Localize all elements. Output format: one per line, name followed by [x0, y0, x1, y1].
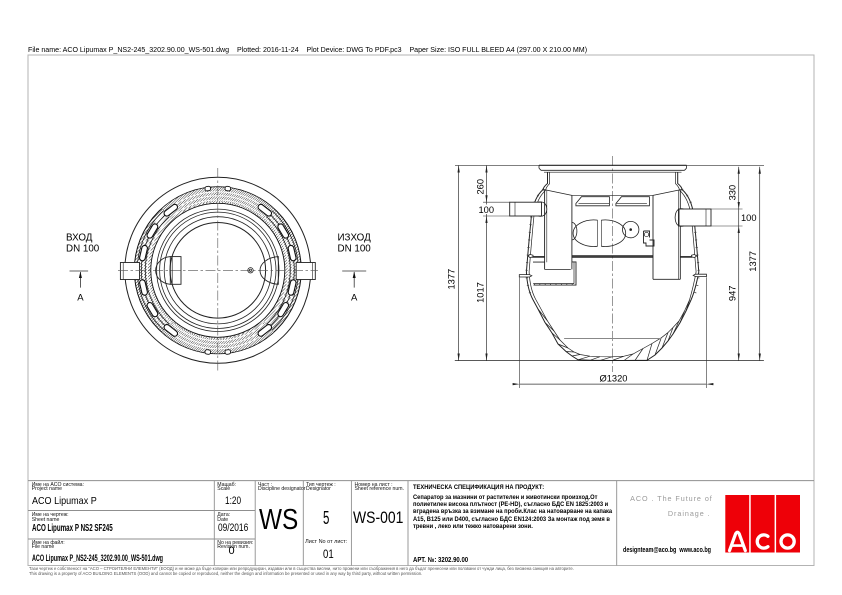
svg-text:ВХОД: ВХОД: [66, 232, 93, 243]
svg-text:1377: 1377: [446, 269, 456, 290]
svg-text:1377: 1377: [748, 251, 758, 272]
svg-text:330: 330: [728, 185, 738, 201]
svg-text:100: 100: [479, 205, 495, 215]
svg-text:1017: 1017: [475, 282, 485, 303]
svg-text:A: A: [351, 293, 358, 304]
svg-text:DN 100: DN 100: [66, 243, 100, 254]
svg-text:100: 100: [741, 213, 757, 223]
svg-text:ИЗХОД: ИЗХОД: [338, 232, 372, 243]
svg-text:Ø1320: Ø1320: [600, 373, 628, 383]
svg-text:A: A: [77, 293, 84, 304]
svg-text:947: 947: [728, 286, 738, 302]
svg-text:260: 260: [475, 179, 485, 195]
svg-text:DN 100: DN 100: [338, 243, 372, 254]
